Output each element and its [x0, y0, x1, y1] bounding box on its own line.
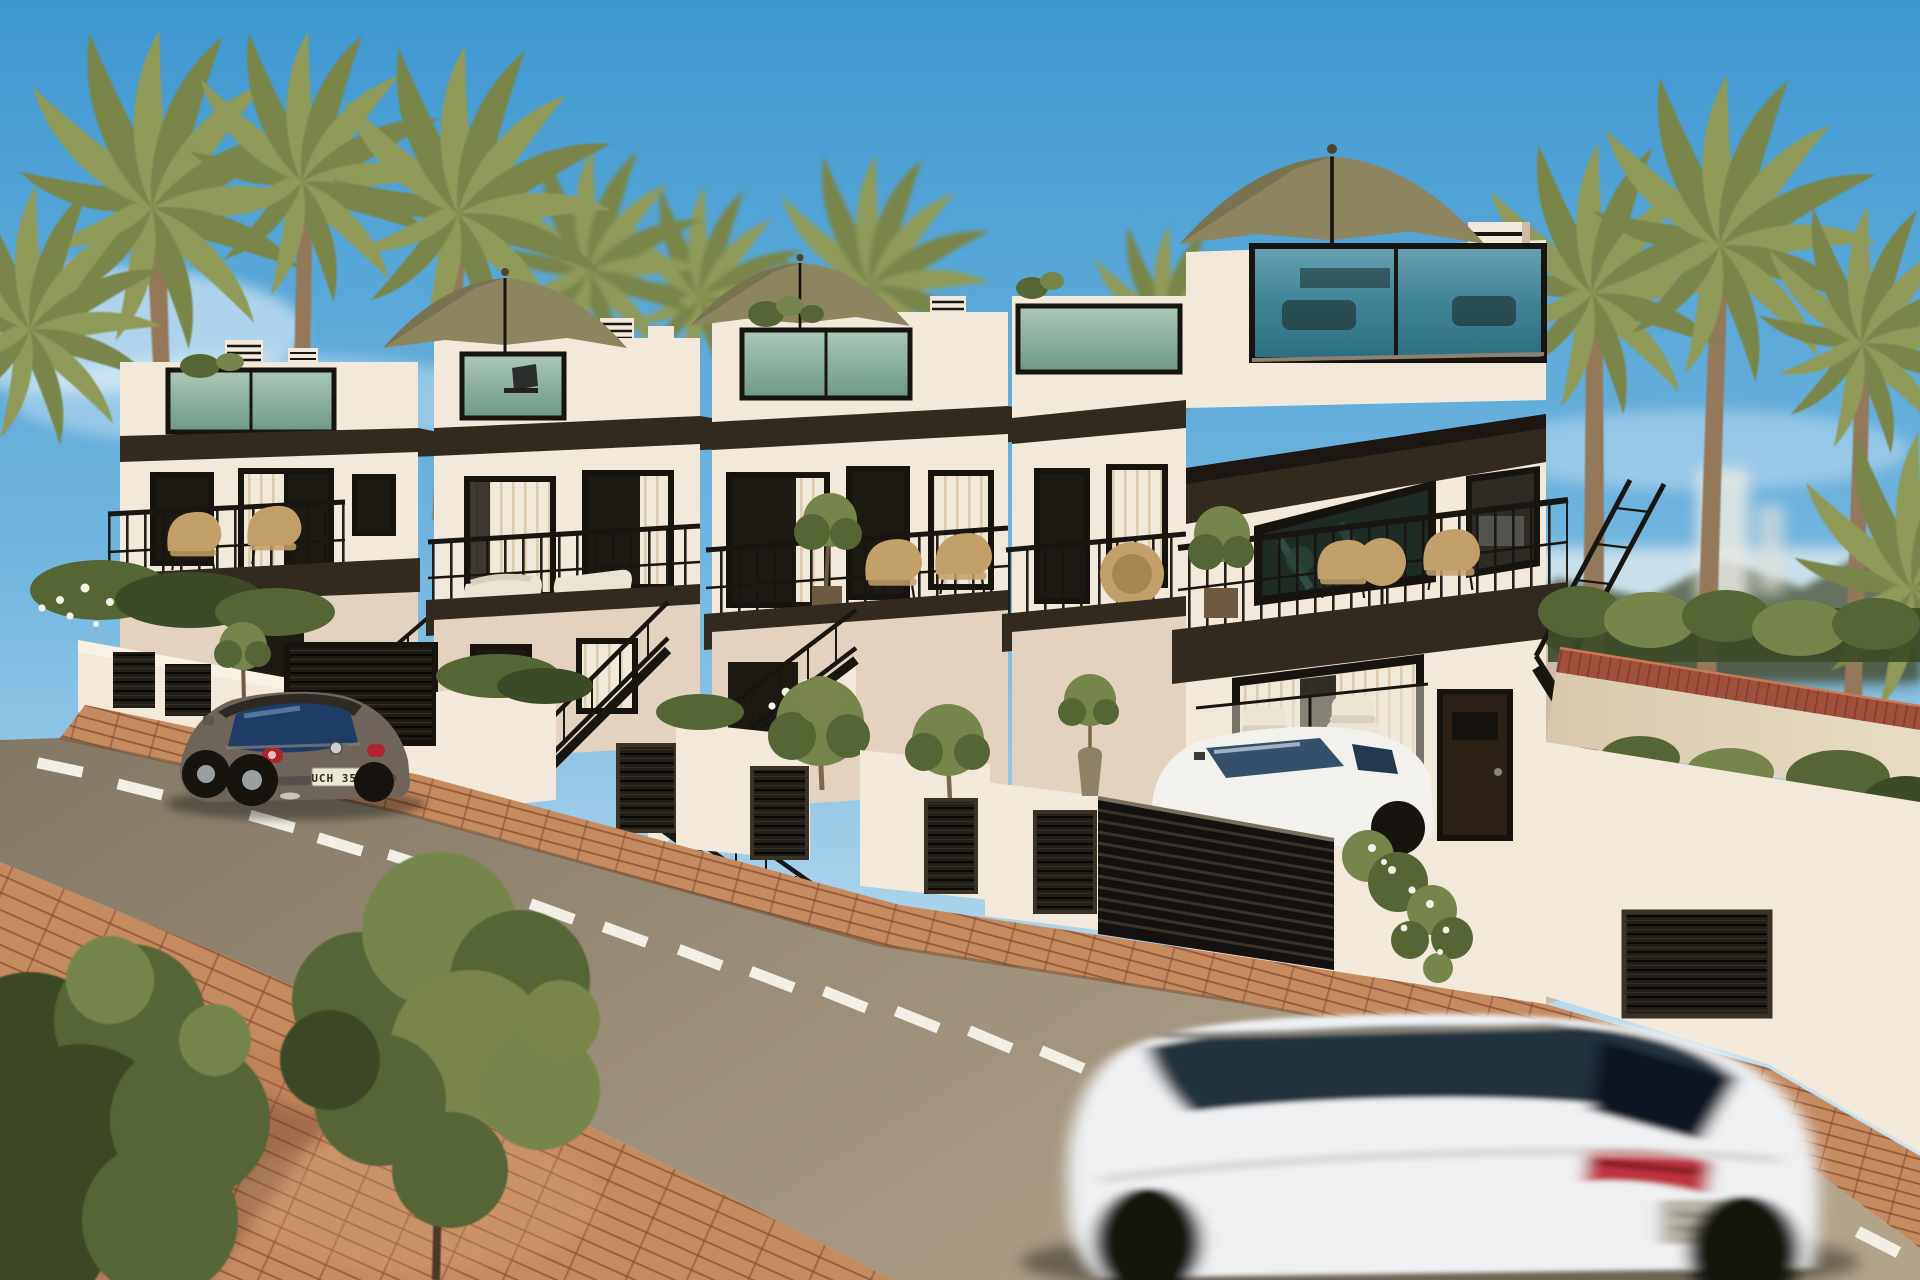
architectural-rendering: UCH 352 — [0, 0, 1920, 1280]
house-4 — [1002, 272, 1186, 818]
roof-terrace-glass — [462, 354, 564, 418]
scene-canvas: UCH 352 — [0, 0, 1920, 1280]
taillight — [367, 744, 385, 757]
roof-terrace-glass — [1252, 246, 1544, 360]
vw-badge — [330, 742, 342, 754]
